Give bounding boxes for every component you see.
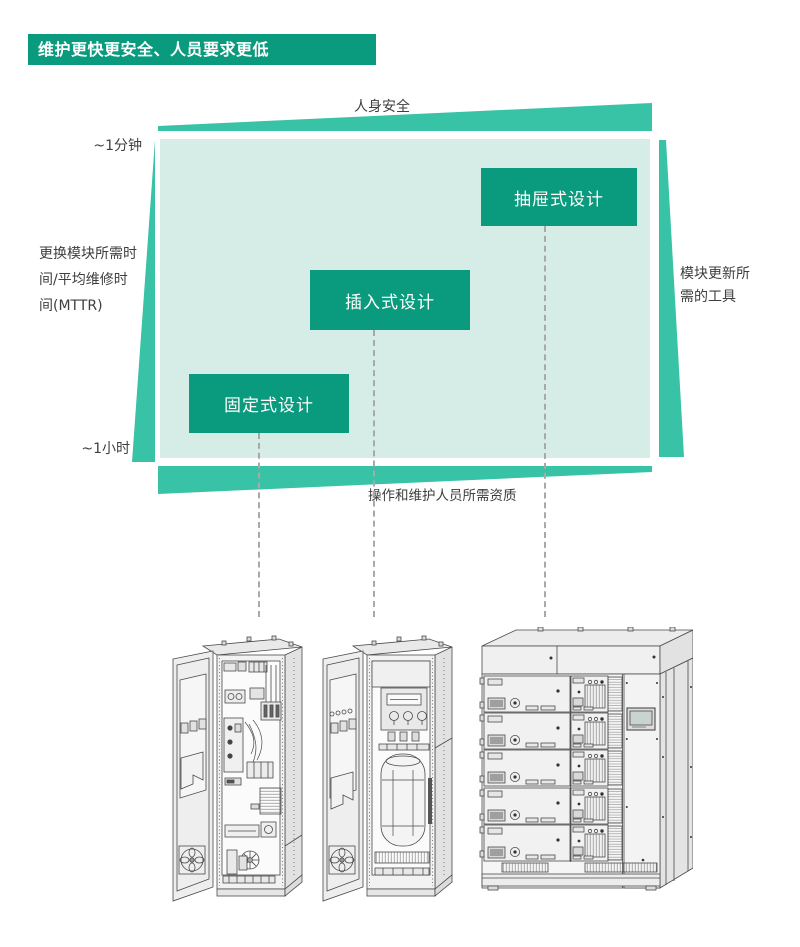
page: 维护更快更安全、人员要求更低 人身安全 ~1分钟 更换模块所需时 间/平均维修时… bbox=[0, 0, 800, 947]
design-box-plug-in: 插入式设计 bbox=[310, 270, 470, 330]
wedge-bottom-qualification bbox=[158, 466, 652, 494]
cab2-open-door bbox=[323, 651, 363, 901]
cab1-roof bbox=[203, 639, 302, 655]
connector-withdrawable-design bbox=[544, 226, 546, 617]
withdrawable-design-cabinet-illustration bbox=[478, 627, 693, 903]
cab2-side-panel bbox=[435, 647, 452, 889]
cab3-bottom-vent-right bbox=[585, 863, 657, 872]
cab2-drive-module bbox=[381, 754, 425, 846]
cab2-bottom-grille bbox=[375, 852, 429, 863]
diagram-canvas bbox=[0, 0, 800, 520]
connector-fixed-design bbox=[258, 433, 260, 617]
cab3-right-door bbox=[624, 674, 660, 888]
wedge-top-personal-safety bbox=[158, 103, 652, 131]
cab3-plinth bbox=[482, 646, 660, 674]
fixed-design-cabinet-illustration bbox=[165, 628, 318, 905]
plug-in-design-cabinet-illustration bbox=[315, 628, 468, 905]
cab3-bottom-vent-left bbox=[502, 863, 548, 872]
cab3-drawer-rows bbox=[480, 676, 622, 861]
cab1-open-door bbox=[173, 651, 213, 901]
cab1-vent-grille bbox=[260, 788, 281, 814]
cab2-keypad bbox=[381, 688, 427, 730]
connector-plug-in-design bbox=[373, 330, 375, 617]
design-box-fixed: 固定式设计 bbox=[189, 374, 349, 433]
design-box-withdrawable: 抽屉式设计 bbox=[481, 168, 637, 226]
cab3-roof bbox=[482, 630, 693, 646]
wedge-right-tools bbox=[659, 140, 684, 457]
wedge-left-mttr bbox=[132, 140, 155, 462]
cab1-side-panel bbox=[285, 647, 302, 889]
cab2-roof bbox=[353, 639, 452, 655]
